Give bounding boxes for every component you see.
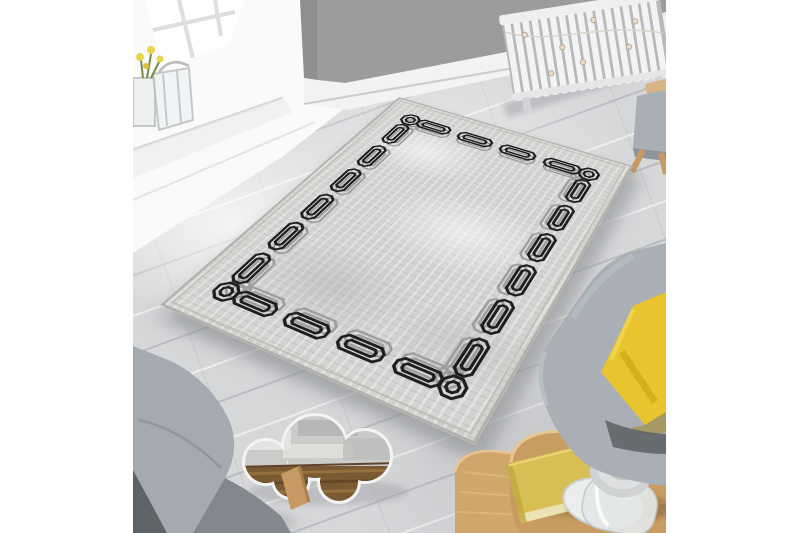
product-photo-canvas <box>0 0 800 533</box>
cloud-mirror <box>233 412 408 506</box>
room-photo <box>133 0 666 533</box>
furniture-layer <box>133 0 666 533</box>
